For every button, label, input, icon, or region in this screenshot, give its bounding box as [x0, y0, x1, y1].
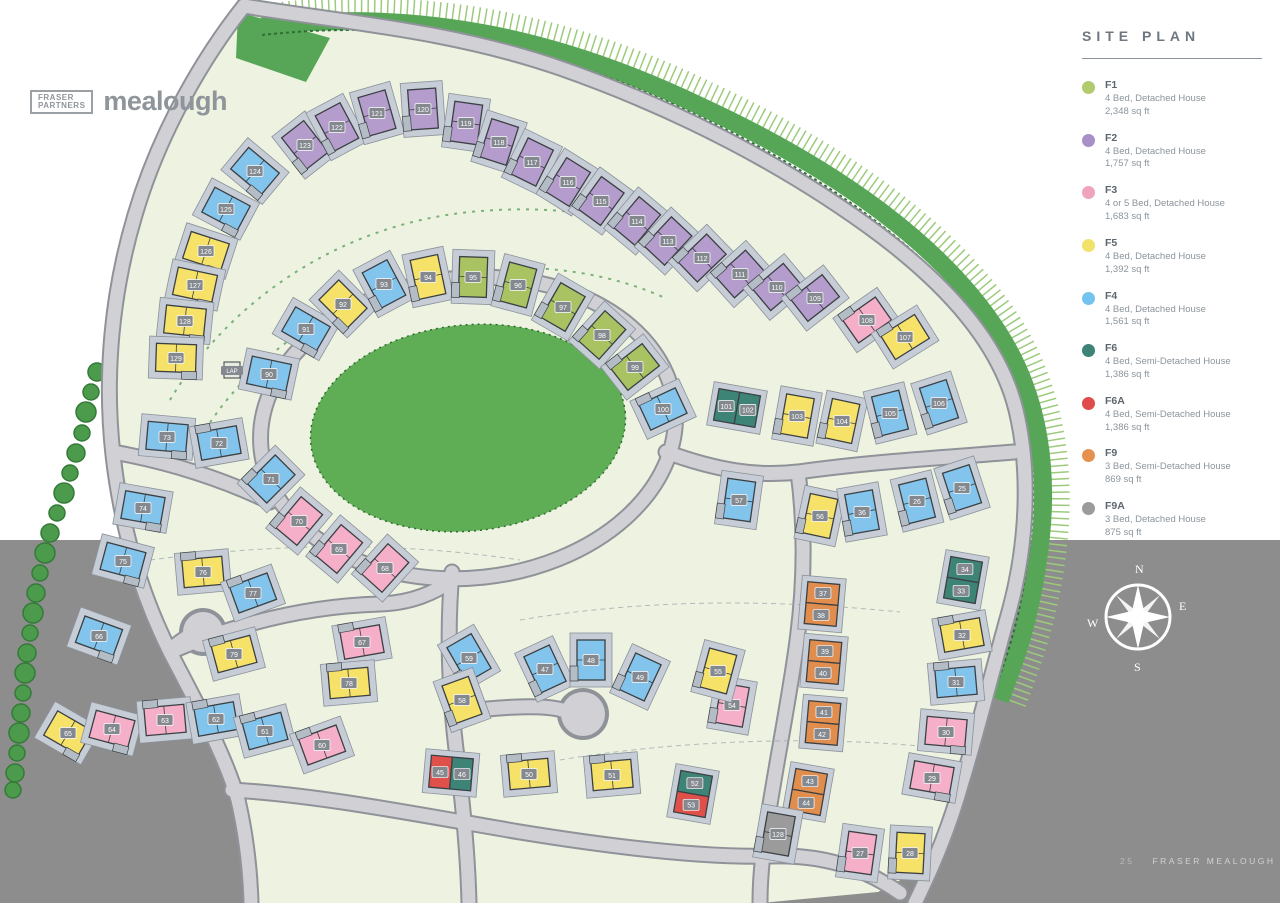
svg-text:113: 113 — [662, 239, 673, 246]
svg-text:105: 105 — [884, 411, 896, 418]
plot-number-badge: 108 — [859, 315, 875, 326]
svg-text:96: 96 — [514, 283, 522, 290]
plot-number-badge: 71 — [263, 474, 279, 485]
svg-text:95: 95 — [469, 275, 477, 282]
plot-number-badge: 48 — [583, 655, 599, 666]
svg-text:72: 72 — [215, 441, 223, 448]
svg-text:58: 58 — [458, 698, 466, 705]
svg-text:100: 100 — [657, 407, 669, 414]
legend-item-f4: F4 4 Bed, Detached House 1,561 sq ft — [1082, 290, 1262, 330]
plot-number-badge: 104 — [834, 416, 850, 427]
plot-number-badge: 123 — [297, 140, 313, 151]
plot-number-badge: 40 — [815, 667, 831, 678]
tree — [32, 565, 48, 581]
svg-text:107: 107 — [899, 335, 911, 342]
plot-number-badge: 44 — [798, 797, 814, 808]
svg-text:106: 106 — [933, 401, 945, 408]
svg-text:115: 115 — [595, 199, 606, 206]
brand-line2: PARTNERS — [38, 102, 85, 110]
page-footer: 25 FRASER MEALOUGH — [1120, 856, 1275, 866]
svg-text:122: 122 — [331, 125, 343, 132]
svg-text:102: 102 — [742, 408, 754, 415]
house-plot-101[interactable] — [707, 382, 768, 435]
plot-number-badge: 46 — [454, 768, 470, 779]
site-plan-canvas: 1231221211201191181171161151141131121111… — [0, 0, 1280, 903]
legend-color-dot — [1082, 449, 1095, 462]
plot-number-badge: 77 — [245, 588, 261, 599]
legend-item-size: 1,757 sq ft — [1105, 158, 1206, 171]
plot-number-badge: 56 — [812, 511, 828, 522]
svg-text:43: 43 — [806, 779, 814, 786]
legend-item-desc: 4 Bed, Detached House — [1105, 93, 1206, 106]
legend-item-f6: F6 4 Bed, Semi-Detached House 1,386 sq f… — [1082, 342, 1262, 382]
plot-number-badge: 51 — [604, 770, 620, 781]
legend-color-dot — [1082, 344, 1095, 357]
legend-item-id: F2 — [1105, 132, 1206, 144]
tree — [12, 704, 30, 722]
svg-text:129: 129 — [170, 356, 182, 363]
tree — [76, 402, 96, 422]
svg-text:128: 128 — [772, 832, 784, 839]
svg-text:90: 90 — [265, 372, 273, 379]
plot-number-badge: 43 — [802, 776, 818, 787]
plot-number-badge: 74 — [135, 503, 151, 514]
legend-item-f3: F3 4 or 5 Bed, Detached House 1,683 sq f… — [1082, 184, 1262, 224]
tree — [6, 764, 24, 782]
svg-text:28: 28 — [906, 851, 914, 858]
plot-number-badge: 67 — [354, 637, 370, 648]
house-plot-39[interactable] — [800, 633, 849, 691]
tree — [9, 745, 25, 761]
svg-text:68: 68 — [381, 566, 389, 573]
svg-text:26: 26 — [913, 499, 921, 506]
plot-number-badge: 68 — [377, 563, 393, 574]
legend-item-size: 869 sq ft — [1105, 474, 1231, 487]
plot-number-badge: 111 — [732, 269, 748, 280]
svg-text:50: 50 — [525, 772, 533, 779]
compass-w: W — [1087, 616, 1099, 630]
svg-text:118: 118 — [493, 140, 504, 147]
tree — [9, 723, 29, 743]
plot-number-badge: 105 — [882, 408, 898, 419]
svg-text:101: 101 — [720, 404, 732, 411]
svg-text:73: 73 — [163, 435, 171, 442]
tree — [67, 444, 85, 462]
legend-item-desc: 4 Bed, Detached House — [1105, 146, 1206, 159]
legend-item-size: 1,386 sq ft — [1105, 369, 1231, 382]
tree — [54, 483, 74, 503]
plot-number-badge: 57 — [731, 495, 747, 506]
legend-item-size: 1,561 sq ft — [1105, 316, 1206, 329]
house-plot-37[interactable] — [798, 575, 847, 633]
plot-number-badge: 31 — [948, 677, 964, 688]
plot-number-badge: 115 — [593, 196, 609, 207]
svg-text:92: 92 — [339, 302, 347, 309]
culdesac — [561, 692, 605, 736]
house-plot-34[interactable] — [937, 550, 990, 611]
legend-item-size: 875 sq ft — [1105, 527, 1206, 540]
plot-number-badge: 39 — [817, 646, 833, 657]
compass-e: E — [1179, 599, 1186, 613]
plot-number-badge: 62 — [208, 714, 224, 725]
legend-item-size: 1,683 sq ft — [1105, 211, 1225, 224]
svg-text:53: 53 — [687, 803, 695, 810]
plot-number-badge: 128 — [770, 829, 786, 840]
plot-number-badge: 49 — [632, 672, 648, 683]
svg-text:75: 75 — [119, 559, 127, 566]
plot-number-badge: 61 — [257, 726, 273, 737]
svg-text:40: 40 — [819, 671, 827, 678]
plot-number-badge: 30 — [938, 727, 954, 738]
plot-number-badge: 26 — [909, 496, 925, 507]
svg-text:109: 109 — [809, 296, 821, 303]
legend-item-id: F1 — [1105, 79, 1206, 91]
legend-item-f5: F5 4 Bed, Detached House 1,392 sq ft — [1082, 237, 1262, 277]
plot-number-badge: 69 — [331, 544, 347, 555]
svg-text:77: 77 — [249, 591, 257, 598]
tree — [74, 425, 90, 441]
svg-text:32: 32 — [958, 633, 966, 640]
legend-item-size: 2,348 sq ft — [1105, 106, 1206, 119]
svg-text:76: 76 — [199, 570, 207, 577]
plot-number-badge: 28 — [902, 848, 918, 859]
legend-item-f9: F9 3 Bed, Semi-Detached House 869 sq ft — [1082, 447, 1262, 487]
legend-item-id: F4 — [1105, 290, 1206, 302]
plot-number-badge: 75 — [115, 556, 131, 567]
legend-color-dot — [1082, 292, 1095, 305]
plot-number-badge: 65 — [60, 728, 76, 739]
house-plot-41[interactable] — [799, 694, 848, 752]
plot-number-badge: 76 — [195, 567, 211, 578]
house-plot-52[interactable] — [667, 764, 720, 825]
legend-color-dot — [1082, 134, 1095, 147]
svg-text:124: 124 — [249, 169, 261, 176]
svg-text:48: 48 — [587, 658, 595, 665]
plot-number-badge: 64 — [104, 724, 120, 735]
svg-text:97: 97 — [559, 305, 567, 312]
svg-text:120: 120 — [417, 107, 429, 114]
plot-number-badge: 25 — [954, 483, 970, 494]
tree — [5, 782, 21, 798]
plot-number-badge: 97 — [555, 302, 571, 313]
legend-title: SITE PLAN — [1082, 28, 1262, 44]
plot-number-badge: 95 — [465, 272, 481, 283]
plot-number-badge: 41 — [816, 707, 832, 718]
plot-number-badge: 118 — [491, 137, 507, 148]
tree — [18, 644, 36, 662]
tree — [15, 685, 31, 701]
legend-color-dot — [1082, 397, 1095, 410]
svg-text:51: 51 — [608, 773, 616, 780]
plot-number-badge: 55 — [710, 666, 726, 677]
plot-number-badge: 122 — [329, 122, 345, 133]
tree — [41, 524, 59, 542]
plot-number-badge: 70 — [291, 516, 307, 527]
legend-color-dot — [1082, 502, 1095, 515]
plot-number-badge: 99 — [627, 362, 643, 373]
svg-text:34: 34 — [961, 567, 969, 574]
house-plot-45[interactable] — [422, 749, 480, 798]
plot-number-badge: 93 — [376, 279, 392, 290]
legend-color-dot — [1082, 239, 1095, 252]
svg-text:104: 104 — [836, 419, 848, 426]
svg-text:49: 49 — [636, 675, 644, 682]
compass-n: N — [1135, 562, 1144, 576]
plot-number-badge: 50 — [521, 769, 537, 780]
svg-text:127: 127 — [189, 283, 201, 290]
legend-item-desc: 3 Bed, Semi-Detached House — [1105, 461, 1231, 474]
legend-item-f1: F1 4 Bed, Detached House 2,348 sq ft — [1082, 79, 1262, 119]
legend-item-desc: 4 Bed, Semi-Detached House — [1105, 356, 1231, 369]
plot-number-badge: 103 — [789, 411, 805, 422]
plot-number-badge: 42 — [814, 728, 830, 739]
svg-text:114: 114 — [631, 219, 642, 226]
svg-text:59: 59 — [465, 656, 473, 663]
svg-text:46: 46 — [458, 772, 466, 779]
plot-number-badge: 102 — [740, 404, 756, 415]
svg-text:91: 91 — [302, 327, 310, 334]
plot-number-badge: 91 — [298, 324, 314, 335]
svg-text:31: 31 — [952, 680, 960, 687]
svg-text:119: 119 — [460, 121, 471, 128]
site-name: mealough — [103, 86, 227, 117]
plot-number-badge: 110 — [769, 282, 785, 293]
svg-text:37: 37 — [819, 591, 827, 598]
legend-item-f9a: F9A 3 Bed, Detached House 875 sq ft — [1082, 500, 1262, 540]
legend-item-id: F9A — [1105, 500, 1206, 512]
legend-item-id: F3 — [1105, 184, 1225, 196]
fraser-partners-badge: FRASER PARTNERS — [30, 90, 93, 114]
svg-text:79: 79 — [230, 652, 238, 659]
plot-number-badge: 78 — [341, 678, 357, 689]
plot-number-badge: 27 — [852, 848, 868, 859]
svg-text:65: 65 — [64, 731, 72, 738]
plot-number-badge: 116 — [560, 177, 576, 188]
svg-text:103: 103 — [791, 414, 803, 421]
plot-number-badge: 66 — [91, 631, 107, 642]
plot-number-badge: 113 — [660, 236, 676, 247]
plot-number-badge: 59 — [461, 653, 477, 664]
svg-text:116: 116 — [562, 180, 573, 187]
svg-text:44: 44 — [802, 801, 810, 808]
svg-text:30: 30 — [942, 730, 950, 737]
svg-text:56: 56 — [816, 514, 824, 521]
svg-text:57: 57 — [735, 498, 743, 505]
svg-text:36: 36 — [858, 510, 866, 517]
svg-text:108: 108 — [861, 318, 873, 325]
plot-number-badge: 58 — [454, 695, 470, 706]
legend-item-id: F6 — [1105, 342, 1231, 354]
plot-number-badge: 127 — [187, 280, 203, 291]
plot-number-badge: 117 — [524, 157, 540, 168]
svg-text:78: 78 — [345, 681, 353, 688]
svg-text:64: 64 — [108, 727, 116, 734]
plot-number-badge: 126 — [198, 246, 214, 257]
svg-text:LAP: LAP — [226, 369, 237, 375]
legend-item-desc: 3 Bed, Detached House — [1105, 514, 1206, 527]
legend-item-desc: 4 Bed, Semi-Detached House — [1105, 409, 1231, 422]
legend-item-desc: 4 Bed, Detached House — [1105, 251, 1206, 264]
developer-logo: FRASER PARTNERS mealough — [30, 86, 227, 117]
plot-number-badge: 128 — [177, 316, 193, 327]
svg-text:27: 27 — [856, 851, 864, 858]
legend-item-id: F9 — [1105, 447, 1231, 459]
svg-text:47: 47 — [541, 667, 549, 674]
plot-number-badge: 119 — [458, 118, 474, 129]
plot-number-badge: 29 — [924, 773, 940, 784]
svg-text:25: 25 — [958, 486, 966, 493]
svg-text:110: 110 — [771, 285, 782, 292]
svg-text:67: 67 — [358, 640, 366, 647]
legend-color-dot — [1082, 186, 1095, 199]
plot-number-badge: 120 — [415, 104, 431, 115]
svg-text:66: 66 — [95, 634, 103, 641]
svg-text:126: 126 — [200, 249, 212, 256]
plot-number-badge: 47 — [537, 664, 553, 675]
tree — [83, 384, 99, 400]
footer-text: FRASER MEALOUGH — [1152, 856, 1275, 866]
tree — [62, 465, 78, 481]
plot-number-badge: 37 — [815, 588, 831, 599]
plot-number-badge: 92 — [335, 299, 351, 310]
svg-text:98: 98 — [598, 333, 606, 340]
plot-number-badge: 112 — [694, 253, 710, 264]
tree — [23, 603, 43, 623]
plot-number-badge: 53 — [683, 799, 699, 810]
svg-text:94: 94 — [424, 275, 432, 282]
svg-text:71: 71 — [267, 477, 275, 484]
svg-text:99: 99 — [631, 365, 639, 372]
legend-item-f2: F2 4 Bed, Detached House 1,757 sq ft — [1082, 132, 1262, 172]
plot-number-badge: 96 — [510, 280, 526, 291]
plot-number-badge: 79 — [226, 649, 242, 660]
plot-number-badge: 106 — [931, 398, 947, 409]
plot-number-badge: 52 — [687, 778, 703, 789]
svg-text:62: 62 — [212, 717, 220, 724]
svg-text:38: 38 — [817, 613, 825, 620]
svg-text:45: 45 — [436, 770, 444, 777]
plot-number-badge: 34 — [957, 564, 973, 575]
compass-rose: N E S W — [1083, 555, 1193, 677]
legend-item-size: 1,386 sq ft — [1105, 422, 1231, 435]
plot-number-badge: 32 — [954, 630, 970, 641]
svg-text:93: 93 — [380, 282, 388, 289]
plot-number-badge: 129 — [168, 353, 184, 364]
plot-number-badge: 38 — [813, 609, 829, 620]
svg-text:121: 121 — [371, 111, 383, 118]
legend-rule — [1082, 58, 1262, 59]
tree — [49, 505, 65, 521]
plot-number-badge: 100 — [655, 404, 671, 415]
legend-color-dot — [1082, 81, 1095, 94]
tree — [15, 663, 35, 683]
svg-text:69: 69 — [335, 547, 343, 554]
svg-text:54: 54 — [728, 703, 736, 710]
svg-text:74: 74 — [139, 506, 147, 513]
legend-item-f6a: F6A 4 Bed, Semi-Detached House 1,386 sq … — [1082, 395, 1262, 435]
plot-number-badge: 33 — [953, 585, 969, 596]
svg-text:55: 55 — [714, 669, 722, 676]
plot-number-badge: 101 — [718, 401, 734, 412]
svg-text:70: 70 — [295, 519, 303, 526]
svg-text:63: 63 — [161, 718, 169, 725]
svg-text:61: 61 — [261, 729, 269, 736]
plot-number-badge: 73 — [159, 432, 175, 443]
plot-number-badge: 63 — [157, 715, 173, 726]
legend-item-desc: 4 Bed, Detached House — [1105, 304, 1206, 317]
plot-number-badge: 124 — [247, 166, 263, 177]
svg-text:39: 39 — [821, 649, 829, 656]
legend-panel: SITE PLAN F1 4 Bed, Detached House 2,348… — [1082, 28, 1262, 553]
svg-text:128: 128 — [179, 319, 191, 326]
plot-number-badge: 36 — [854, 507, 870, 518]
legend-items: F1 4 Bed, Detached House 2,348 sq ft F2 … — [1082, 79, 1262, 540]
plot-number-badge: 109 — [807, 293, 823, 304]
page-number: 25 — [1120, 856, 1134, 866]
svg-text:123: 123 — [299, 143, 311, 150]
plot-number-badge: 98 — [594, 330, 610, 341]
legend-item-desc: 4 or 5 Bed, Detached House — [1105, 198, 1225, 211]
plot-number-badge: 125 — [218, 204, 234, 215]
svg-text:29: 29 — [928, 776, 936, 783]
tree — [35, 543, 55, 563]
lap-area: LAP — [221, 362, 243, 378]
tree — [22, 625, 38, 641]
svg-text:33: 33 — [957, 589, 965, 596]
plot-number-badge: 72 — [211, 438, 227, 449]
svg-text:112: 112 — [696, 256, 707, 263]
plot-number-badge: 45 — [432, 767, 448, 778]
plot-number-badge: 60 — [314, 740, 330, 751]
svg-text:60: 60 — [318, 743, 326, 750]
svg-text:42: 42 — [818, 732, 826, 739]
legend-item-id: F5 — [1105, 237, 1206, 249]
svg-text:41: 41 — [820, 710, 828, 717]
svg-text:52: 52 — [691, 781, 699, 788]
legend-item-size: 1,392 sq ft — [1105, 264, 1206, 277]
plot-number-badge: 90 — [261, 369, 277, 380]
svg-text:111: 111 — [735, 272, 746, 279]
tree — [27, 584, 45, 602]
svg-text:117: 117 — [526, 160, 537, 167]
compass-s: S — [1134, 660, 1141, 674]
legend-item-id: F6A — [1105, 395, 1231, 407]
plot-number-badge: 107 — [897, 332, 913, 343]
plot-number-badge: 114 — [629, 216, 645, 227]
plot-number-badge: 94 — [420, 272, 436, 283]
plot-number-badge: 121 — [369, 108, 385, 119]
svg-text:125: 125 — [220, 207, 232, 214]
